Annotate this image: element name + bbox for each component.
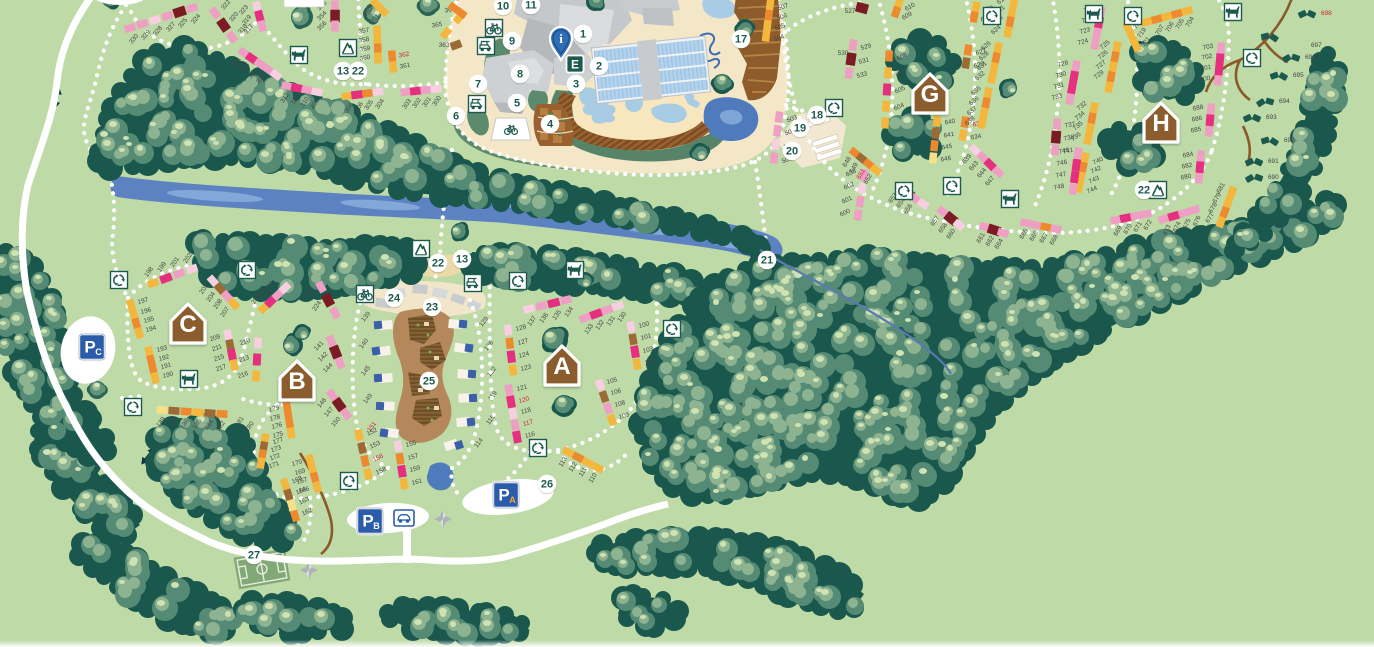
svg-text:697: 697: [1311, 42, 1322, 49]
svg-text:18: 18: [811, 109, 823, 121]
svg-text:9: 9: [509, 35, 515, 47]
svg-text:696: 696: [1305, 54, 1316, 61]
svg-text:3: 3: [573, 78, 579, 90]
svg-text:A: A: [509, 495, 516, 505]
svg-text:11: 11: [525, 0, 537, 11]
svg-text:694: 694: [1279, 98, 1290, 105]
svg-text:P: P: [362, 512, 373, 531]
svg-text:10: 10: [497, 0, 509, 12]
svg-text:7: 7: [475, 78, 481, 90]
svg-text:13: 13: [456, 253, 468, 265]
svg-text:26: 26: [541, 478, 553, 490]
svg-text:6: 6: [453, 110, 459, 122]
svg-text:H: H: [1152, 110, 1169, 137]
svg-text:P: P: [498, 486, 509, 505]
svg-text:A: A: [553, 353, 570, 380]
svg-text:22: 22: [432, 257, 444, 269]
svg-text:B: B: [373, 521, 380, 531]
svg-text:4: 4: [547, 118, 554, 130]
svg-text:23: 23: [426, 301, 438, 313]
svg-text:8: 8: [517, 68, 523, 80]
svg-text:19: 19: [794, 122, 806, 134]
svg-text:22: 22: [1138, 184, 1150, 196]
svg-text:B: B: [288, 368, 305, 395]
svg-text:G: G: [921, 81, 940, 108]
svg-text:17: 17: [735, 33, 747, 45]
svg-text:P: P: [84, 338, 95, 357]
svg-text:25: 25: [423, 375, 435, 387]
svg-text:27: 27: [248, 549, 260, 561]
svg-text:695: 695: [1293, 72, 1304, 79]
svg-text:363: 363: [439, 42, 450, 49]
svg-text:5: 5: [514, 97, 520, 109]
svg-text:E: E: [571, 58, 579, 72]
svg-text:693: 693: [1266, 114, 1277, 121]
svg-text:22: 22: [352, 65, 364, 77]
svg-text:i: i: [559, 31, 563, 46]
svg-text:24: 24: [388, 292, 401, 304]
svg-text:530: 530: [838, 50, 849, 57]
svg-text:C: C: [179, 311, 196, 338]
svg-text:690: 690: [1268, 174, 1279, 181]
svg-text:20: 20: [786, 145, 798, 157]
svg-text:527: 527: [845, 8, 856, 15]
svg-text:698: 698: [1321, 10, 1332, 17]
svg-text:692: 692: [1284, 137, 1295, 144]
svg-text:21: 21: [761, 254, 773, 266]
svg-text:13: 13: [337, 65, 349, 77]
svg-text:1: 1: [580, 28, 586, 40]
svg-text:691: 691: [1268, 158, 1279, 165]
svg-text:C: C: [95, 347, 102, 357]
svg-text:2: 2: [596, 60, 602, 72]
